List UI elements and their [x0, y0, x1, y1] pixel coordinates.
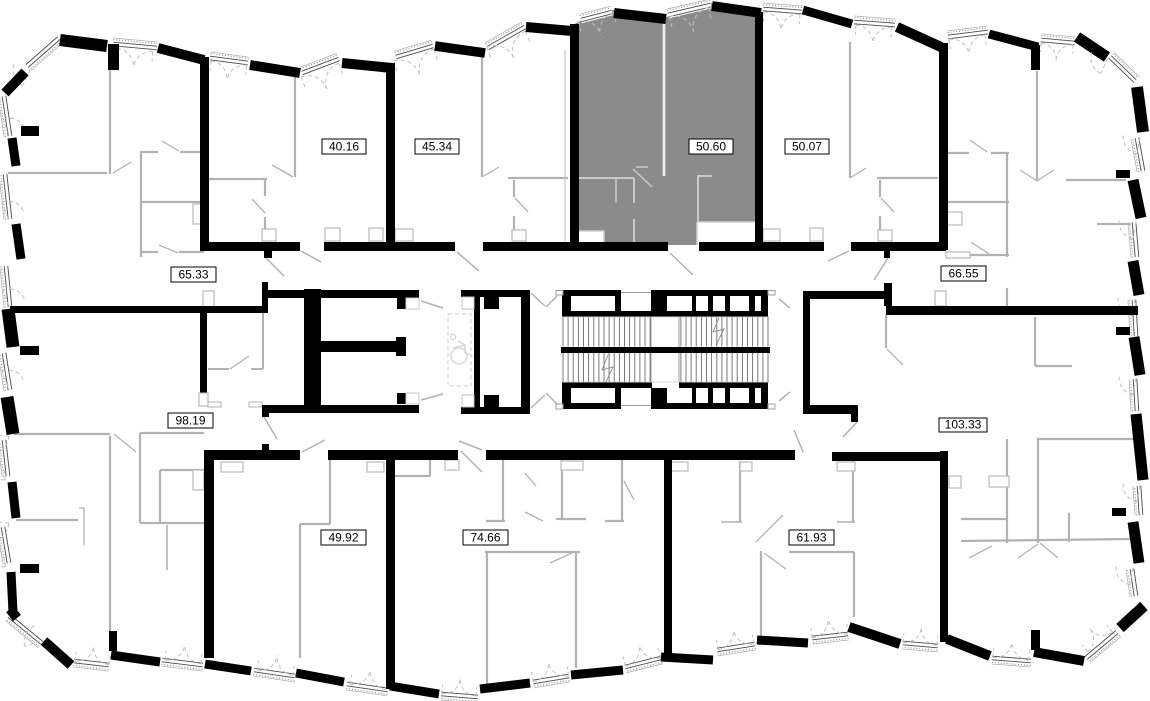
svg-text:98.19: 98.19: [175, 414, 205, 428]
svg-text:61.93: 61.93: [796, 531, 826, 545]
svg-text:45.34: 45.34: [422, 140, 452, 154]
svg-text:50.60: 50.60: [696, 140, 726, 154]
svg-text:66.55: 66.55: [948, 267, 978, 281]
svg-text:50.07: 50.07: [792, 140, 822, 154]
svg-text:40.16: 40.16: [329, 140, 359, 154]
svg-text:65.33: 65.33: [178, 268, 208, 282]
svg-text:74.66: 74.66: [470, 531, 500, 545]
svg-text:49.92: 49.92: [328, 531, 358, 545]
svg-text:103.33: 103.33: [945, 418, 982, 432]
